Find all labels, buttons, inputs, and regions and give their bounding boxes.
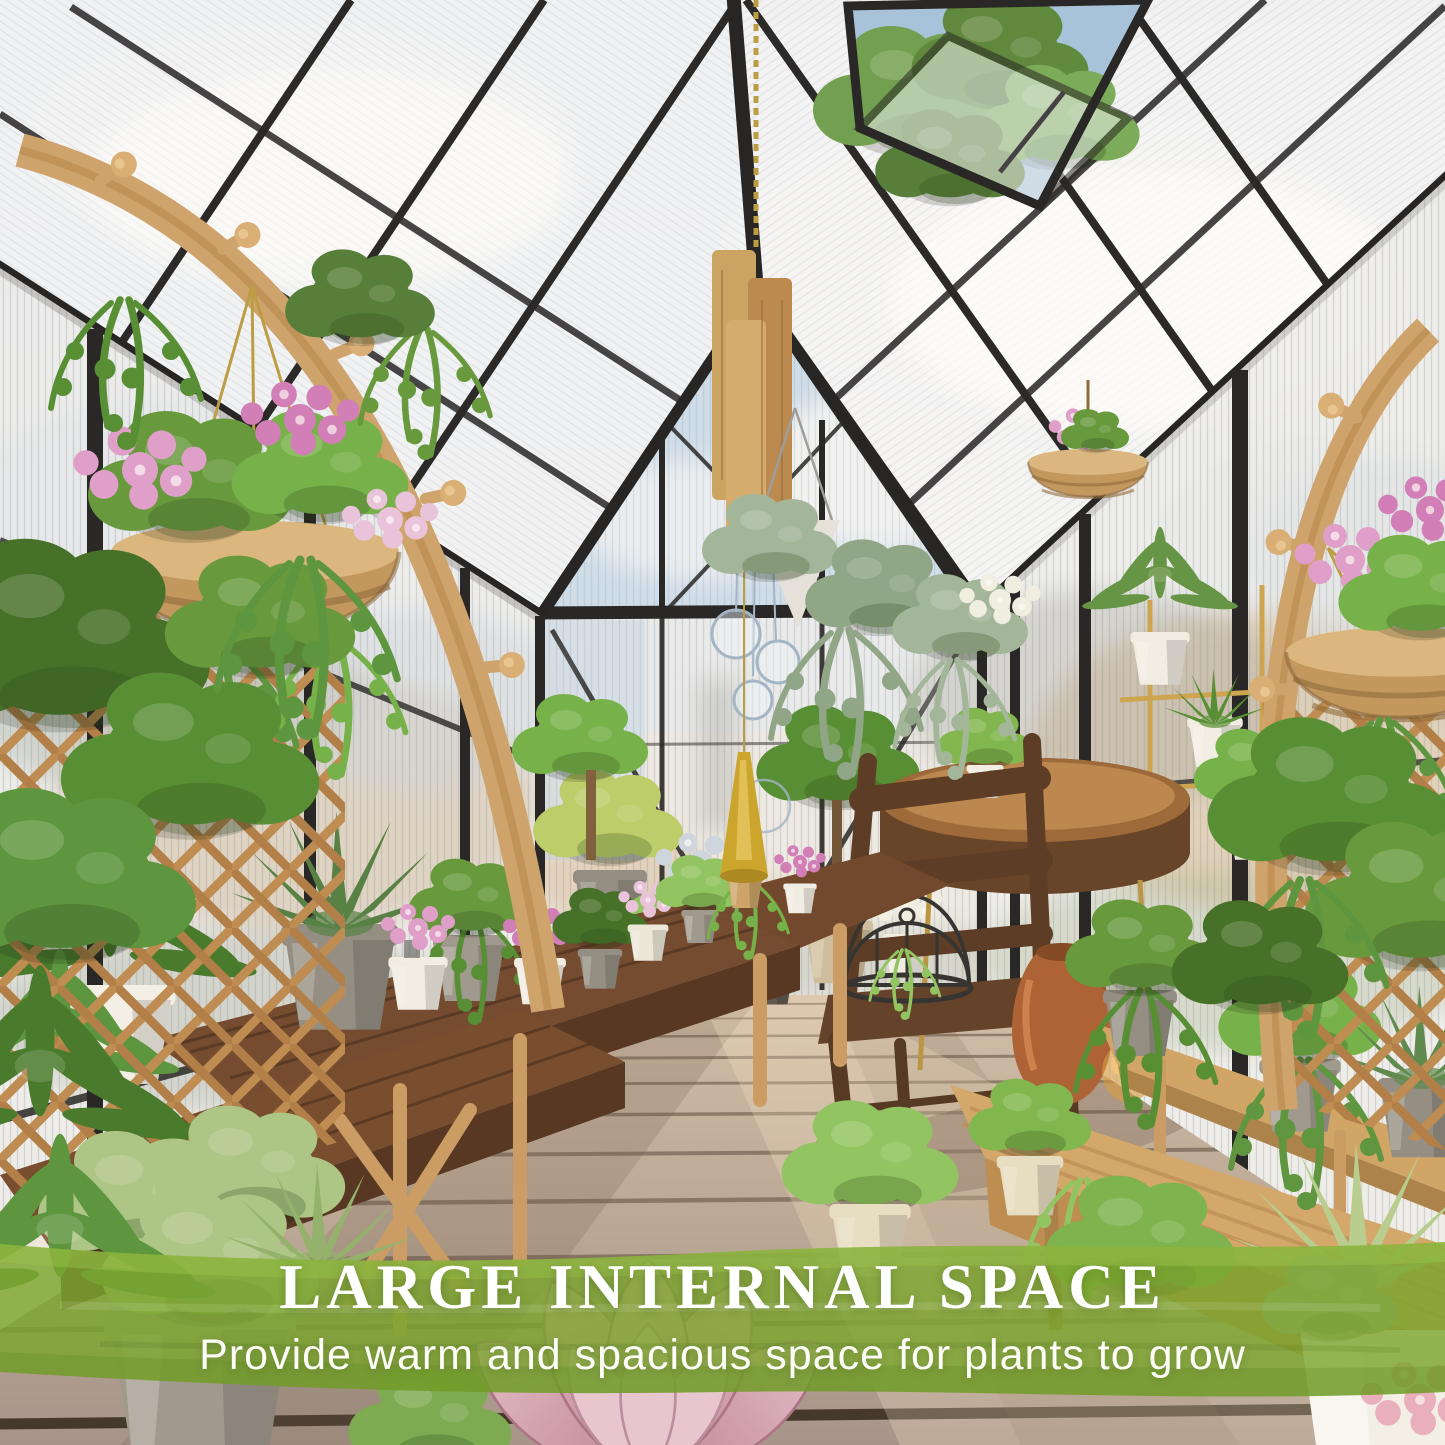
greenhouse-scene	[0, 0, 1445, 1445]
banner-subtitle: Provide warm and spacious space for plan…	[0, 1330, 1445, 1380]
banner-title: LARGE INTERNAL SPACE	[0, 1252, 1445, 1322]
greenhouse-product-image: LARGE INTERNAL SPACE Provide warm and sp…	[0, 0, 1445, 1445]
sunlight-wash	[0, 0, 1445, 1445]
